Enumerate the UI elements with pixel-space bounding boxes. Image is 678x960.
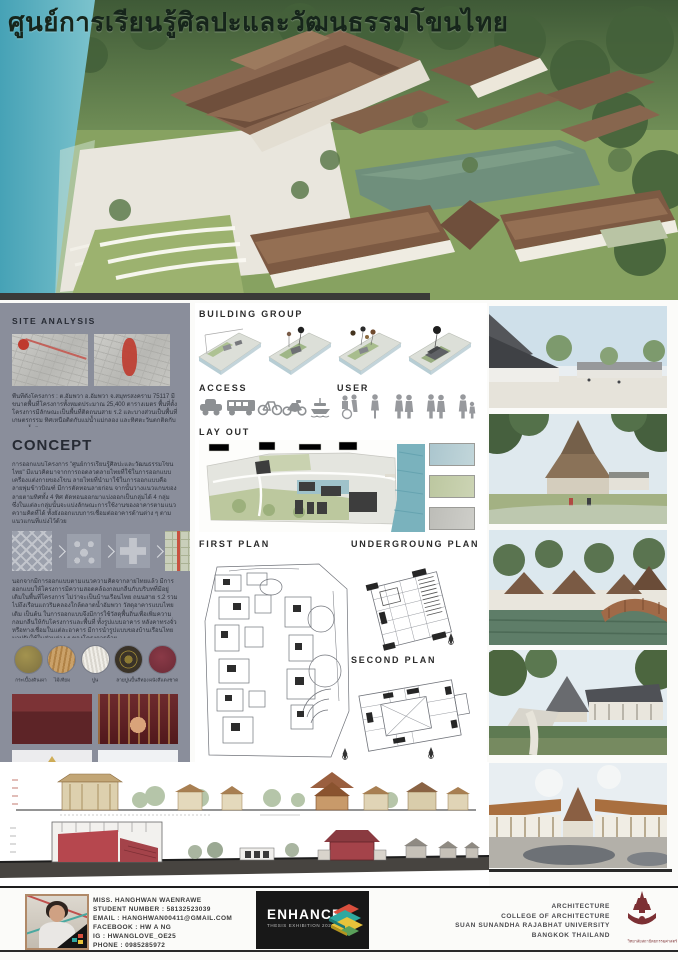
site-analysis-maps	[12, 334, 178, 386]
layout-site-plan	[199, 440, 425, 532]
aerial-render-image	[0, 0, 678, 300]
material-swatch: ผนังสีแดงชาด	[146, 645, 178, 686]
arrow-icon	[53, 545, 66, 558]
site-map-context	[12, 334, 88, 386]
material-swatch: ลายปูนปั้นสีทอง	[113, 645, 145, 686]
massing-diagram-2	[267, 325, 333, 381]
legend-water-swatch	[429, 443, 475, 466]
student-photo	[25, 894, 89, 950]
access-icons	[199, 395, 331, 419]
red-wall-swatch-icon	[148, 645, 177, 674]
student-facebook: FACEBOOK : HW A NG	[93, 923, 258, 932]
elevation-drawing	[10, 770, 482, 818]
university-line-1: ARCHITECTURE	[420, 902, 610, 912]
site-boundary-highlight	[122, 338, 137, 376]
bicycle-icon	[259, 402, 282, 415]
university-line-4: BANGKOK THAILAND	[420, 931, 610, 941]
student-number: STUDENT NUMBER : 58132523039	[93, 905, 258, 914]
concept-pattern-diagram	[12, 531, 178, 571]
plaster-swatch-icon	[81, 645, 110, 674]
material-swatch: กระเบื้องดินเผา	[12, 645, 44, 686]
family-icon	[427, 394, 445, 418]
building-group-heading: BUILDING GROUP	[199, 309, 303, 319]
library-interior-render	[98, 750, 178, 762]
university-emblem: วิทยาลัยสถาปัตยกรรมศาสตร์	[620, 891, 664, 948]
main-pavilion-render	[489, 414, 667, 524]
couple-icon	[395, 394, 413, 418]
student-name: MISS. HANGHWAN WAENRAWE	[93, 896, 258, 905]
courtyard-render	[489, 306, 667, 408]
pond-bridge-render	[489, 530, 667, 645]
massing-diagram-1	[197, 325, 263, 381]
site-axis-diagram	[165, 531, 190, 571]
simplified-cross-pattern	[116, 534, 150, 568]
thai-lattice-pattern	[12, 531, 52, 571]
boat-icon	[311, 398, 330, 417]
underground-plan-heading: UNDERGROUNG PLAN	[351, 539, 479, 549]
emblem-caption: วิทยาลัยสถาปัตยกรรมศาสตร์	[627, 938, 656, 945]
section-drawing	[0, 820, 489, 884]
material-swatch: ไม้เทียม	[46, 645, 78, 686]
student-instagram: IG : HWANGLOVE_OE25	[93, 932, 258, 941]
garden-walkway-render	[489, 650, 667, 755]
building-group-diagrams	[197, 325, 473, 381]
access-heading: ACCESS	[199, 383, 247, 393]
first-plan-heading: FIRST PLAN	[199, 539, 270, 549]
massing-diagram-3	[337, 325, 403, 381]
massing-diagram-4	[407, 325, 473, 381]
theater-interior-render	[12, 694, 92, 744]
underground-plan-drawing	[363, 565, 459, 655]
first-plan-drawing	[199, 561, 357, 761]
single-visitor-icon	[371, 394, 379, 418]
legend-green-swatch	[429, 475, 475, 498]
theater-stage-render	[98, 694, 178, 744]
parent-and-child-icon	[459, 394, 476, 418]
legend-paving-swatch	[429, 507, 475, 530]
footer-top-rule	[0, 886, 678, 888]
exhibition-logo-box: ENHANCE THESIS EXHIBITION 2020	[256, 891, 369, 949]
concept-paragraph-1: การออกแบบโครงการ "ศูนย์การเรียนรู้ศิลปะแ…	[12, 461, 178, 525]
thesis-poster-board: ศูนย์การเรียนรู้ศิลปะและวัฒนธรรมโขนไทย S…	[0, 0, 678, 960]
center-drawings-panel: BUILDING GROUP	[195, 303, 487, 763]
university-line-3: SUAN SUNANDHA RAJABHAT UNIVERSITY	[420, 921, 610, 931]
site-analysis-text: พื้นที่ตั้งโครงการ : ต.อัมพวา อ.อัมพวา จ…	[12, 393, 178, 427]
entrance-building-render	[489, 763, 667, 868]
exhibition-blocks-icon	[325, 900, 365, 940]
exhibition-hall-render	[12, 750, 92, 762]
material-swatch: ปูน	[79, 645, 111, 686]
site-map-zoom	[94, 334, 170, 386]
student-email: EMAIL : HANGHWAN00411@GMAIL.COM	[93, 914, 258, 923]
concept-heading: CONCEPT	[12, 437, 178, 454]
layout-heading: LAY OUT	[199, 427, 250, 437]
university-line-2: COLLEGE OF ARCHITECTURE	[420, 912, 610, 922]
university-crest-icon	[622, 891, 662, 933]
university-info-block: ARCHITECTURE COLLEGE OF ARCHITECTURE SUA…	[420, 902, 610, 940]
extracted-motif-pattern	[67, 534, 101, 568]
second-plan-drawing	[353, 675, 473, 761]
student-phone: PHONE : 0985285972	[93, 941, 258, 950]
wood-swatch-icon	[47, 645, 76, 674]
wheelchair-visitor-icon	[342, 394, 358, 418]
render-panel-baseline	[489, 869, 672, 872]
north-arrow-icon	[449, 633, 454, 645]
concept-paragraph-2: นอกจากมีการออกแบบตามแนวความคิดจากลายไทยแ…	[12, 578, 178, 638]
right-render-panel	[489, 306, 667, 872]
site-marker	[18, 339, 29, 350]
gold-stucco-swatch-icon	[114, 645, 143, 674]
hero-section: ศูนย์การเรียนรู้ศิลปะและวัฒนธรรมโขนไทย	[0, 0, 678, 300]
north-arrow-icon	[339, 747, 351, 763]
bus-icon	[227, 400, 255, 416]
poster-title: ศูนย์การเรียนรู้ศิลปะและวัฒนธรรมโขนไทย	[8, 2, 508, 43]
terracotta-swatch-icon	[14, 645, 43, 674]
site-analysis-heading: SITE ANALYSIS	[12, 316, 178, 326]
car-icon	[200, 399, 222, 416]
user-icons	[337, 393, 479, 421]
second-plan-heading: SECOND PLAN	[351, 655, 436, 665]
interior-render-grid	[12, 694, 178, 762]
elevation-drawings	[0, 762, 489, 886]
arrow-icon	[102, 545, 115, 558]
left-analysis-panel: SITE ANALYSIS พื้นที่ตั้งโครงการ : ต.อัม…	[0, 303, 190, 762]
user-heading: USER	[337, 383, 369, 393]
north-arrow-icon	[429, 747, 434, 759]
footer-bottom-rule	[0, 950, 678, 952]
student-info-block: MISS. HANGHWAN WAENRAWE STUDENT NUMBER :…	[93, 896, 258, 950]
material-palette: กระเบื้องดินเผา ไม้เทียม ปูน ลายปูนปั้นส…	[12, 645, 178, 686]
arrow-icon	[151, 545, 164, 558]
motorcycle-icon	[283, 400, 306, 415]
